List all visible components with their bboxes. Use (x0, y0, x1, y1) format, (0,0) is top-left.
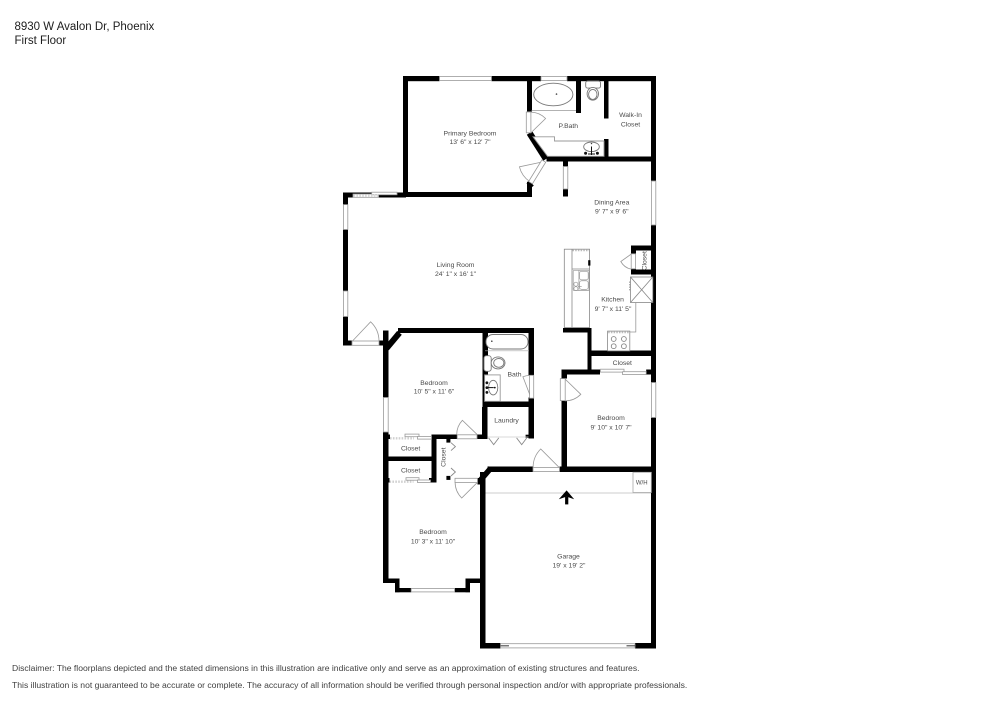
svg-text:Bath: Bath (508, 371, 522, 378)
svg-text:W/H: W/H (636, 480, 648, 486)
svg-text:Primary Bedroom: Primary Bedroom (444, 130, 497, 137)
svg-text:Closet: Closet (441, 447, 448, 466)
svg-text:Closet: Closet (401, 446, 420, 453)
svg-text:Bedroom: Bedroom (419, 529, 447, 536)
svg-text:19' x 19' 2": 19' x 19' 2" (553, 563, 587, 570)
svg-text:13' 6" x 12' 7": 13' 6" x 12' 7" (449, 139, 491, 146)
svg-text:Bedroom: Bedroom (420, 380, 448, 387)
svg-text:Garage: Garage (557, 553, 580, 560)
svg-text:9' 7" x 9' 6": 9' 7" x 9' 6" (595, 208, 629, 215)
svg-text:Kitchen: Kitchen (601, 296, 624, 303)
svg-text:Closet: Closet (613, 360, 632, 367)
svg-text:24' 1" x 16' 1": 24' 1" x 16' 1" (435, 271, 477, 278)
svg-text:Walk-In: Walk-In (619, 112, 642, 119)
svg-text:Closet: Closet (401, 467, 420, 474)
svg-text:10' 3" x 11' 10": 10' 3" x 11' 10" (411, 538, 456, 545)
svg-text:Closet: Closet (621, 122, 640, 129)
svg-text:Closet: Closet (642, 251, 649, 270)
svg-text:9' 7" x 11' 5": 9' 7" x 11' 5" (595, 306, 632, 313)
svg-text:Living Room: Living Room (437, 262, 475, 269)
svg-text:Laundry: Laundry (494, 418, 519, 425)
svg-text:Dining Area: Dining Area (594, 199, 629, 206)
svg-text:Bedroom: Bedroom (597, 415, 625, 422)
svg-text:10' 5" x 11' 6": 10' 5" x 11' 6" (414, 389, 455, 396)
svg-text:P.Bath: P.Bath (559, 123, 579, 130)
svg-text:9' 10" x 10' 7": 9' 10" x 10' 7" (590, 424, 632, 431)
